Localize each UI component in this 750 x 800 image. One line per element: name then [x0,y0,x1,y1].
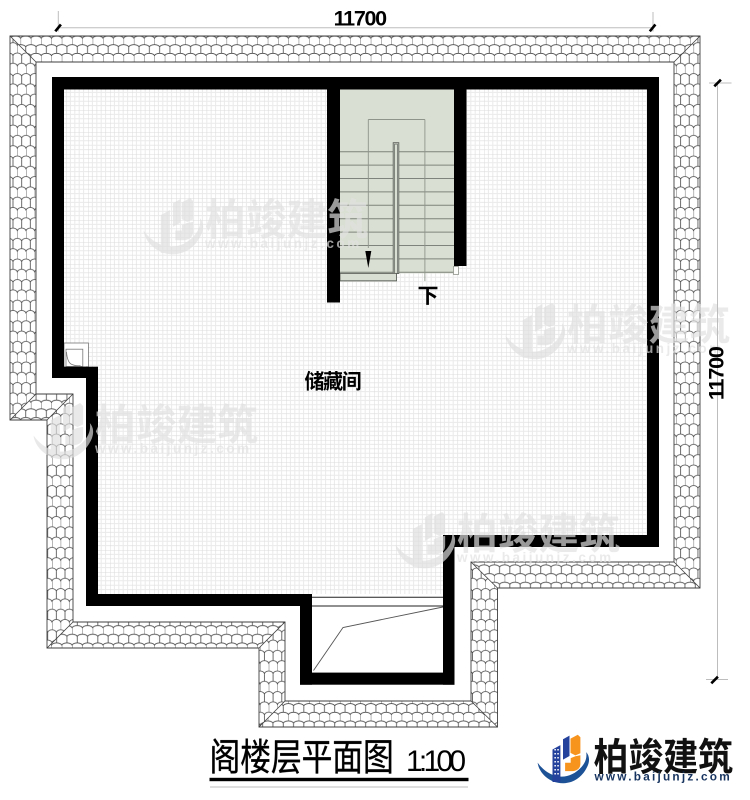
svg-text:11700: 11700 [705,346,729,400]
svg-text:11700: 11700 [334,7,388,31]
svg-text:1:100: 1:100 [406,745,466,778]
svg-text:www.baijunjz.com: www.baijunjz.com [594,769,731,783]
